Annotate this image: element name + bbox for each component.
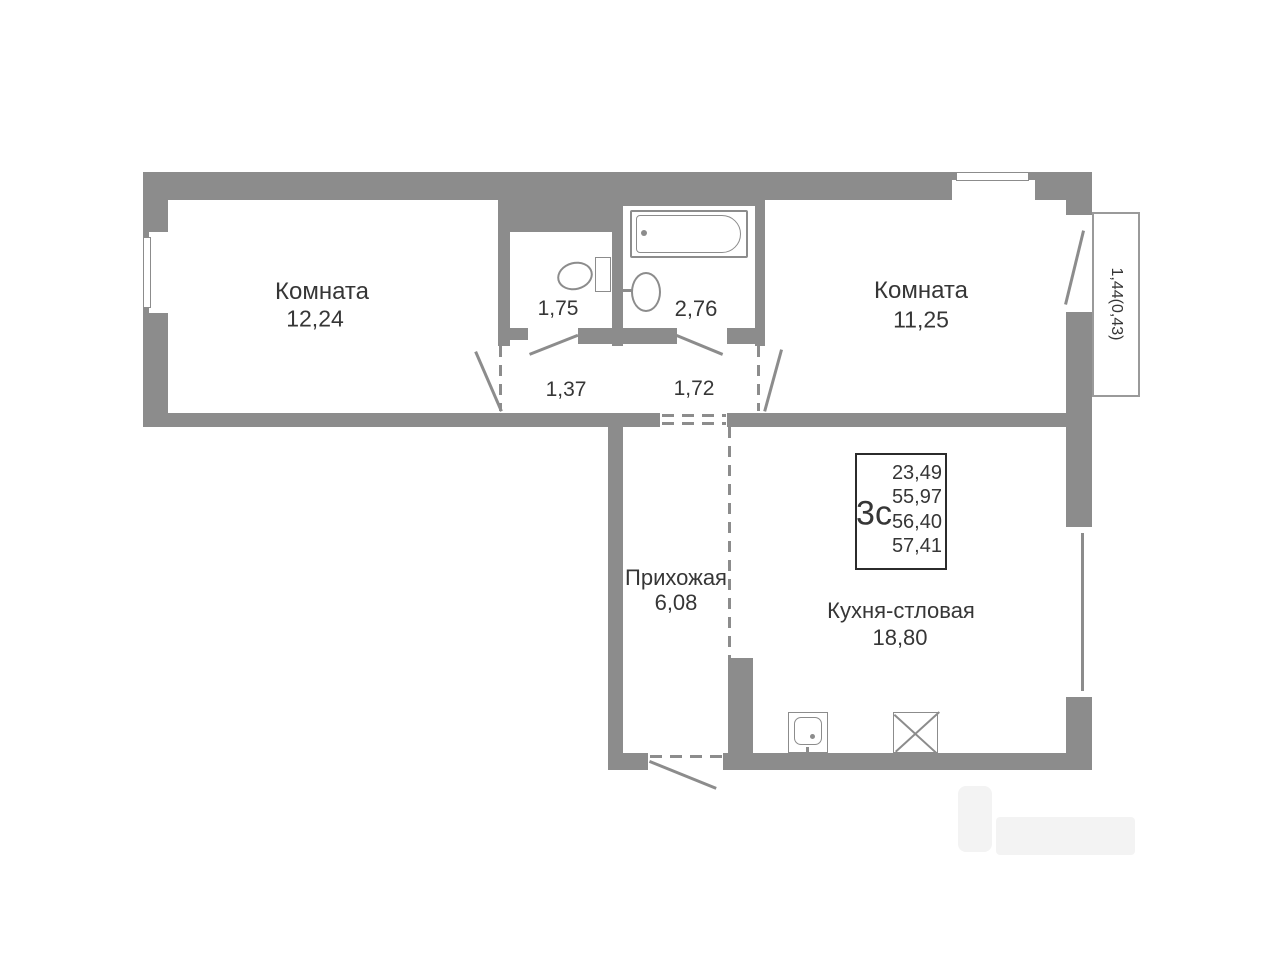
corridor-left-area-label: 1,37 xyxy=(546,378,587,402)
stats-areas: 23,49 55,97 56,40 57,41 xyxy=(860,461,942,558)
hallway-opening-dashed-bottom xyxy=(662,422,726,425)
corridor-right-area-label: 1,72 xyxy=(674,377,715,401)
wc-door-swing-line xyxy=(529,334,578,355)
wall-wc-bathroom xyxy=(612,200,623,346)
window-room-right-icon xyxy=(956,172,1029,181)
room-right-area-label: 11,25 xyxy=(893,307,949,334)
watermark-text xyxy=(996,817,1135,855)
stats-area-line: 55,97 xyxy=(860,485,942,509)
balcony-door-opening xyxy=(1066,215,1092,312)
bath-sink-icon xyxy=(631,272,661,312)
wall-bath-bottom-right xyxy=(727,328,765,344)
wall-wc-bottom-left xyxy=(510,328,528,340)
watermark-logo-icon xyxy=(958,786,992,852)
wall-kitchen-stub xyxy=(728,658,753,753)
room-right-door-swing-line xyxy=(764,349,783,411)
balcony-area-label: 1,44(0,43) xyxy=(1107,268,1125,341)
wall-mid-band-right xyxy=(727,413,1092,427)
wall-mid-band-left xyxy=(143,413,660,427)
wall-above-bathroom xyxy=(623,200,765,206)
kitchen-sink-drain xyxy=(806,747,809,753)
bathtub-basin xyxy=(636,215,741,253)
toilet-tank xyxy=(595,257,611,292)
room-left-door-dashed xyxy=(499,346,502,411)
room-right-door-dashed xyxy=(757,346,760,411)
window-kitchen-glass-line xyxy=(1081,533,1084,691)
wall-bathroom-room-right xyxy=(755,200,765,346)
toilet-icon xyxy=(554,258,596,294)
window-room-left-opening xyxy=(149,232,168,313)
room-left-area-label: 12,24 xyxy=(286,306,344,333)
entry-door-dashed xyxy=(650,755,722,758)
room-right-name-label: Комната xyxy=(874,277,968,305)
kitchen-sink-basin xyxy=(794,717,822,745)
wall-wc-bath-bottom-center xyxy=(578,328,677,344)
hallway-name-label: Прихожая xyxy=(625,565,727,591)
kitchen-name-label: Кухня-стловая xyxy=(827,598,975,624)
kitchen-area-label: 18,80 xyxy=(872,625,927,651)
stats-area-line: 23,49 xyxy=(860,461,942,485)
wall-top xyxy=(143,172,1092,200)
wall-above-wc xyxy=(498,200,623,232)
hallway-area-label: 6,08 xyxy=(655,590,698,616)
wall-hallway-left xyxy=(608,413,623,770)
window-room-left-icon xyxy=(143,237,151,308)
stats-area-line: 57,41 xyxy=(860,534,942,558)
wc-area-label: 1,75 xyxy=(538,297,579,321)
floor-plan: 1,44(0,43) Комната 12,24 Комната 11,25 1… xyxy=(0,0,1280,960)
hallway-kitchen-divider-dashed xyxy=(728,427,731,658)
bathroom-area-label: 2,76 xyxy=(675,296,718,322)
hallway-opening-dashed-top xyxy=(662,414,726,417)
bathroom-door-swing-line xyxy=(676,334,723,355)
stats-area-line: 56,40 xyxy=(860,510,942,534)
window-room-right-opening xyxy=(952,180,1035,200)
bathtub-drain-dot xyxy=(641,230,647,236)
room-left-name-label: Комната xyxy=(275,278,369,306)
kitchen-sink-dot xyxy=(810,734,815,739)
